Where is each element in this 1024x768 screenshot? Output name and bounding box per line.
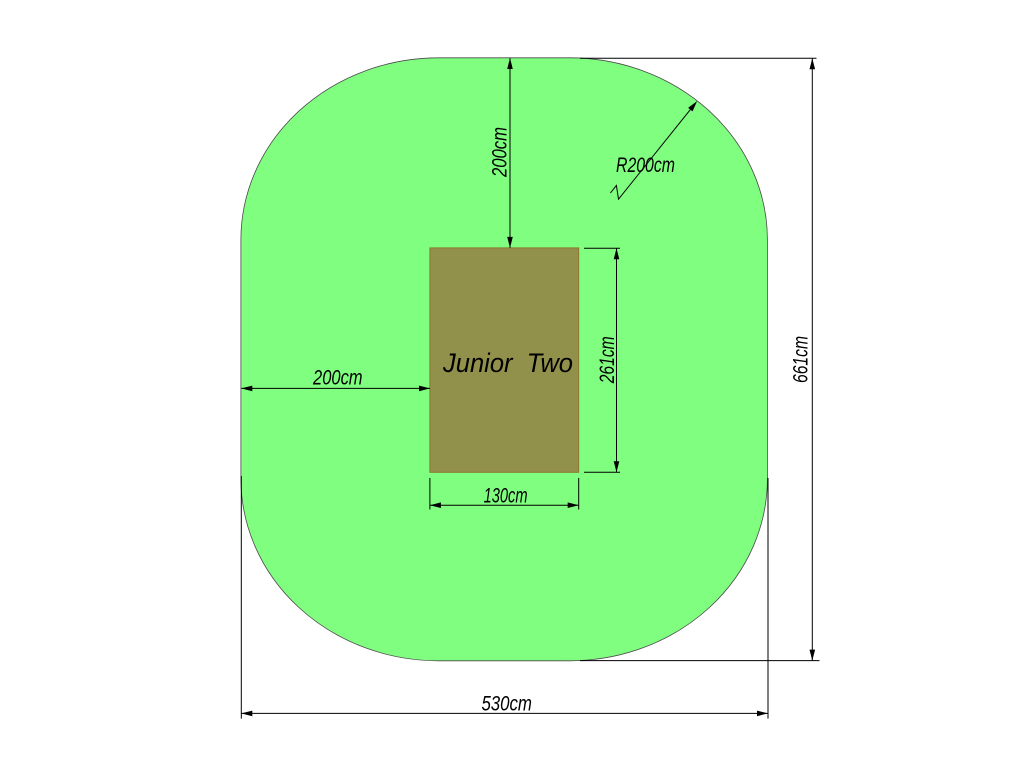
svg-text:261cm: 261cm [596, 336, 619, 384]
svg-text:200cm: 200cm [312, 367, 362, 390]
svg-text:R200cm: R200cm [616, 154, 675, 177]
svg-text:130cm: 130cm [484, 485, 528, 508]
svg-text:200cm: 200cm [489, 127, 512, 178]
svg-text:Junior Two: Junior Two [442, 348, 573, 378]
svg-text:530cm: 530cm [481, 693, 532, 716]
svg-text:661cm: 661cm [790, 336, 813, 383]
